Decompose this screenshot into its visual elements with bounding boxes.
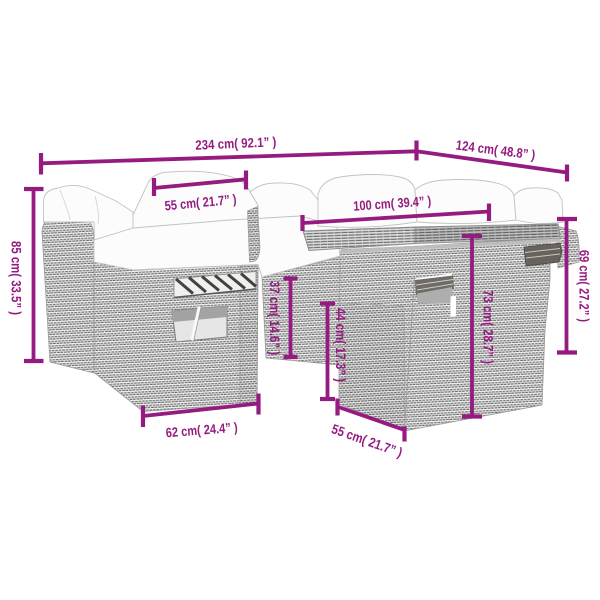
svg-text:69 cm( 27.2” ): 69 cm( 27.2” )	[577, 250, 592, 322]
svg-text:37 cm( 14.6” ): 37 cm( 14.6” )	[267, 281, 282, 355]
svg-text:73 cm( 28.7” ): 73 cm( 28.7” )	[481, 290, 496, 364]
svg-text:44 cm( 17.3” ): 44 cm( 17.3” )	[333, 308, 348, 382]
svg-text:85 cm( 33.5” ): 85 cm( 33.5” )	[9, 241, 24, 315]
